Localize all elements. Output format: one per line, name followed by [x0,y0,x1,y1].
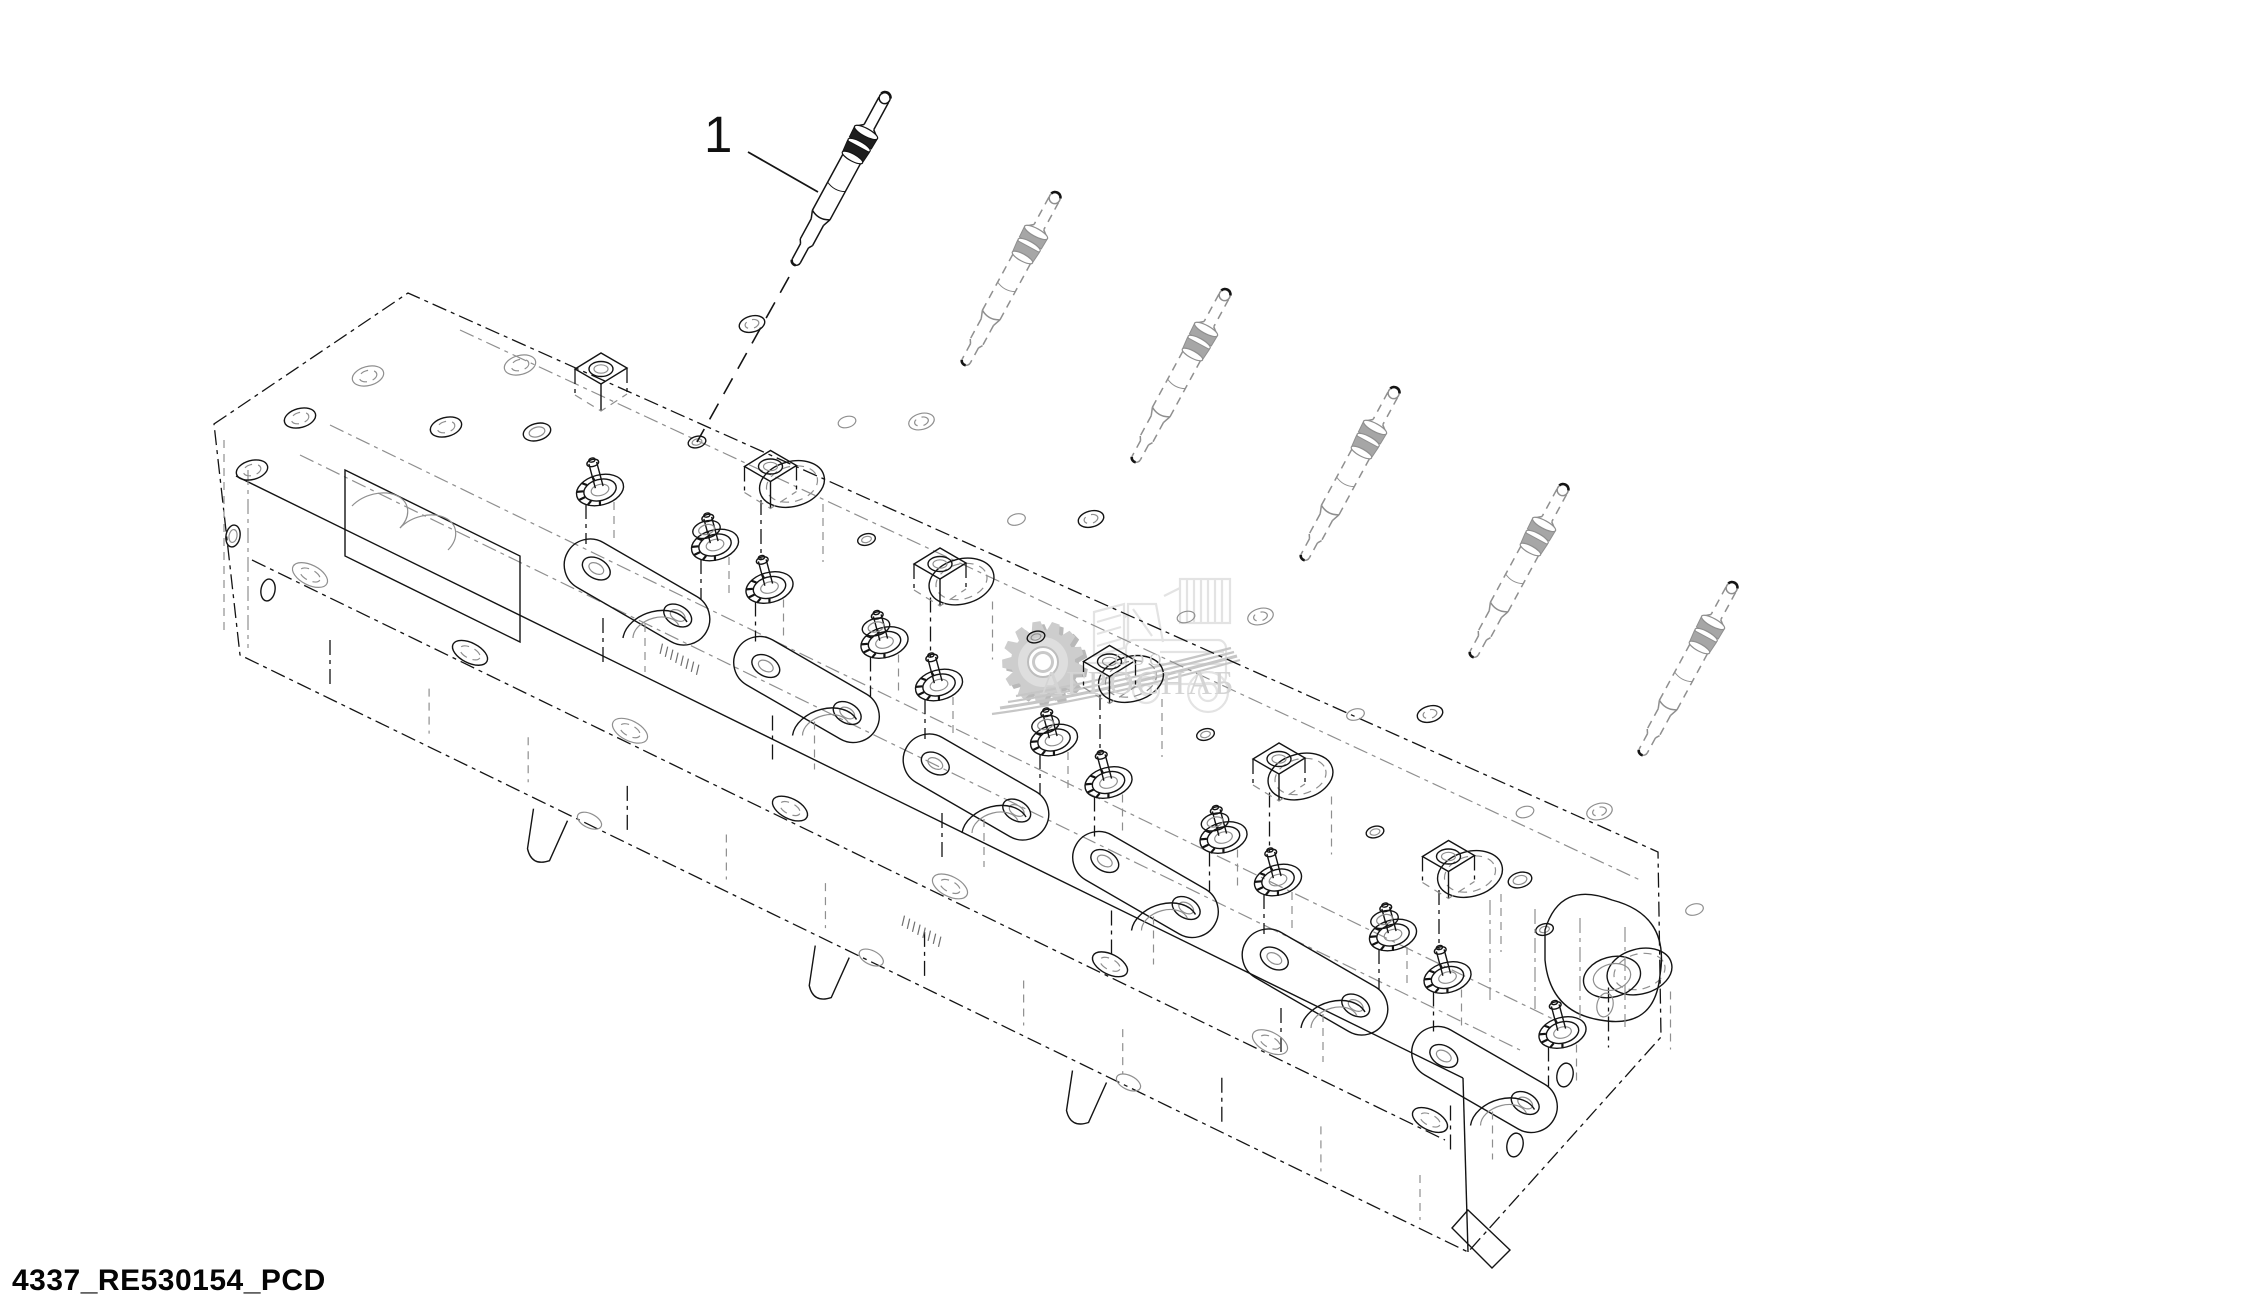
assembly-centerline [697,277,789,442]
glow-plug-4 [1292,381,1408,565]
cylinder-head-drawing [214,293,1705,1268]
glow-plug-2 [953,186,1069,370]
parts-catalog-figure: ООО АГРОСНАБ 1 4337_RE530154_PCD [0,0,2245,1311]
callout-leader-line [748,152,818,192]
glow-plug-6 [1630,576,1746,760]
cast-mark [900,916,944,947]
cylinder-station-6 [1369,800,1705,1159]
glow-plug-5 [1461,478,1577,662]
part-callout-1: 1 [704,109,732,160]
watermark-org-name: АГРОСНАБ [1035,667,1240,701]
cylinder-station-2 [691,410,1027,769]
glow-plug-1 [783,86,899,270]
drawing-id-text: 4337_RE530154_PCD [12,1266,326,1296]
cast-mark [658,644,702,675]
cylinder-station-5 [1199,703,1535,1062]
glow-plug-3 [1123,283,1239,467]
